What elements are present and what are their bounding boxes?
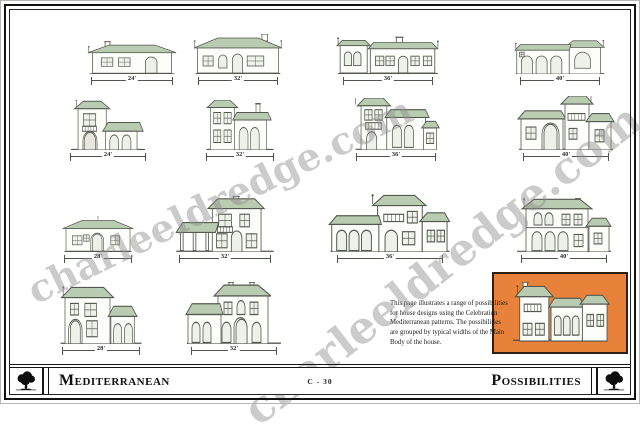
width-dimension: 40' xyxy=(514,253,614,264)
width-dimension: 28' xyxy=(56,345,146,356)
house-elevation-r3c3: 36' xyxy=(328,194,452,264)
house-elevation-r2c2: 32' xyxy=(200,100,280,162)
elevation-drawing xyxy=(516,96,616,150)
width-dimension-label: 32' xyxy=(228,346,240,353)
width-dimension-label: 36' xyxy=(382,76,394,83)
width-dimension: 32' xyxy=(184,345,284,356)
width-dimension: 32' xyxy=(172,253,278,264)
width-dimension-label: 28' xyxy=(92,254,104,261)
elevation-drawing xyxy=(58,216,138,252)
elevation-drawing xyxy=(84,40,180,74)
elevation-drawing xyxy=(56,286,146,344)
footer-left-logo-box xyxy=(10,368,43,394)
oak-tree-icon xyxy=(14,371,38,392)
width-dimension: 32' xyxy=(200,151,280,162)
footer-series-title: Mediterranean xyxy=(59,368,170,394)
house-elevation-r1c3: 36' xyxy=(336,32,440,86)
elevation-drawing xyxy=(184,282,284,344)
width-dimension: 24' xyxy=(64,151,152,162)
width-dimension: 28' xyxy=(58,253,138,264)
width-dimension-label: 24' xyxy=(126,76,138,83)
elevation-drawing xyxy=(64,100,152,150)
oak-tree-icon xyxy=(602,371,626,392)
page-description: This page illustrates a range of possibi… xyxy=(390,299,508,348)
width-dimension-label: 36' xyxy=(384,254,396,261)
footer-page-title: Possibilities xyxy=(491,368,581,394)
width-dimension-label: 36' xyxy=(390,152,402,159)
width-dimension: 40' xyxy=(514,75,606,86)
elevation-drawing xyxy=(336,32,440,74)
width-dimension-label: 40' xyxy=(558,254,570,261)
width-dimension-label: 28' xyxy=(95,346,107,353)
house-elevation-r1c2: 32' xyxy=(192,34,284,86)
width-dimension-label: 32' xyxy=(234,152,246,159)
house-elevation-r4c1: 28' xyxy=(56,286,146,356)
width-dimension-label: 32' xyxy=(219,254,231,261)
width-dimension: 36' xyxy=(328,253,452,264)
elevation-drawing xyxy=(514,198,614,252)
house-elevation-r1c1: 24' xyxy=(84,40,180,86)
house-elevation-r3c4: 40' xyxy=(514,198,614,264)
width-dimension-label: 40' xyxy=(560,152,572,159)
footer-band: Mediterranean C - 30 Possibilities xyxy=(10,367,630,394)
width-dimension-label: 24' xyxy=(102,152,114,159)
width-dimension-label: 32' xyxy=(232,76,244,83)
width-dimension: 36' xyxy=(350,151,442,162)
elevation-drawing xyxy=(172,196,278,252)
pattern-book-page: { "watermark": { "text": "charleeldredge… xyxy=(0,0,640,404)
width-dimension: 36' xyxy=(336,75,440,86)
elevation-drawing xyxy=(350,98,442,150)
house-elevation-r3c2: 32' xyxy=(172,196,278,264)
width-dimension: 32' xyxy=(192,75,284,86)
elevation-drawing xyxy=(200,100,280,150)
elevation-drawing xyxy=(514,36,606,74)
elevation-drawing xyxy=(192,34,284,74)
elevation-drawing xyxy=(328,194,452,252)
footer-right-logo-box xyxy=(597,368,630,394)
house-elevation-r1c4: 40' xyxy=(514,36,606,86)
highlighted-house-elevation xyxy=(504,282,616,344)
width-dimension-label: 40' xyxy=(554,76,566,83)
width-dimension: 40' xyxy=(516,151,616,162)
house-elevation-r2c4: 40' xyxy=(516,96,616,162)
highlighted-house-box xyxy=(492,272,628,354)
house-elevation-r4c2: 32' xyxy=(184,282,284,356)
house-elevation-r2c3: 36' xyxy=(350,98,442,162)
house-elevation-r3c1: 28' xyxy=(58,216,138,264)
house-elevation-r2c1: 24' xyxy=(64,100,152,162)
footer-separator xyxy=(43,368,49,394)
width-dimension: 24' xyxy=(84,75,180,86)
